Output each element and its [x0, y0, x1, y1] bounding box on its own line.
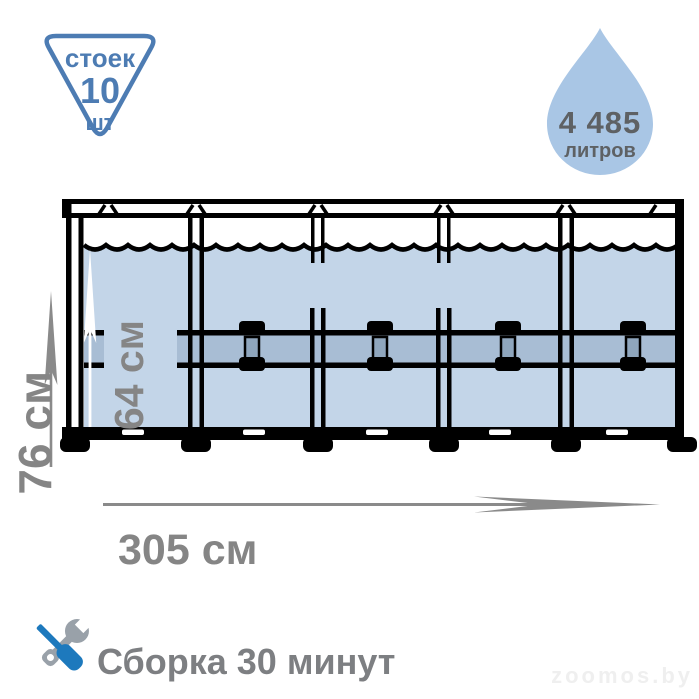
infographic-page: { "badge": { "line1": "стоек", "line2": … [0, 0, 699, 699]
length-label: 305 см [118, 526, 257, 575]
posts-badge-unit: шт [32, 110, 168, 136]
water-depth-label: 64 см [100, 300, 158, 450]
watermark: zoomos.by [551, 663, 693, 689]
assembly-time-label: Сборка 30 минут [97, 641, 395, 683]
posts-badge-word: стоек [32, 44, 168, 72]
volume-unit: литров [538, 139, 662, 163]
posts-badge: стоек 10 шт [32, 44, 168, 136]
length-arrow-icon [103, 497, 660, 513]
volume-value: 4 485 [538, 106, 662, 139]
screwdriver-wrench-icon [32, 610, 98, 674]
total-height-label: 76 см [6, 340, 64, 525]
volume-label: 4 485 литров [538, 106, 662, 163]
posts-badge-count: 10 [32, 72, 168, 110]
top-rail [62, 199, 683, 218]
